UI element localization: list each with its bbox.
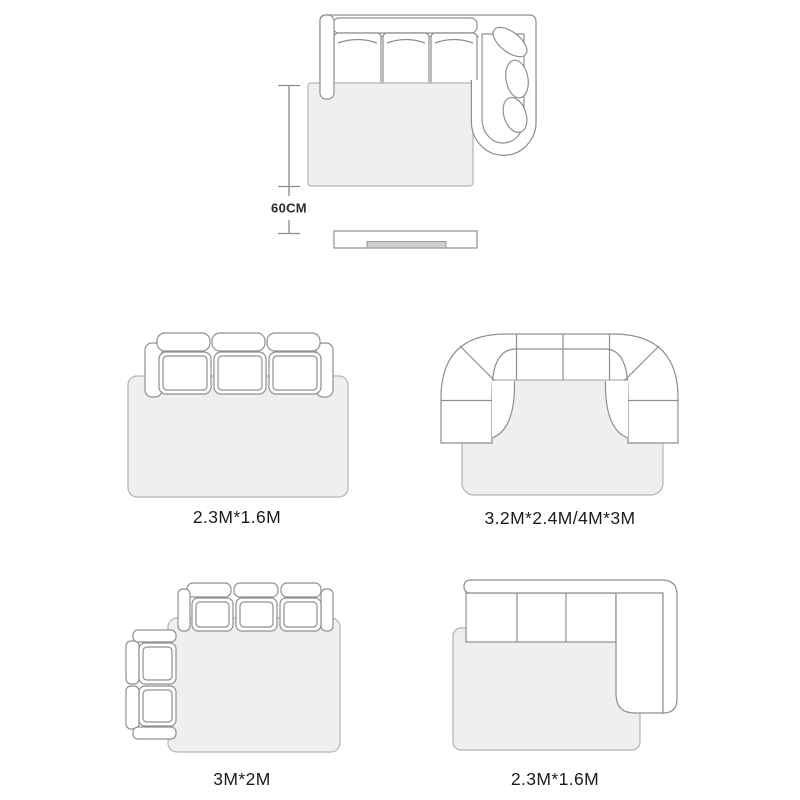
backrest-cushion xyxy=(333,18,477,33)
curved-sectional-sofa-with-rug xyxy=(441,334,678,495)
seat-section xyxy=(466,593,616,642)
size-label-sofa-with-loveseat: 3M*2M xyxy=(213,769,270,790)
loveseat-armrest xyxy=(133,630,176,642)
rug xyxy=(453,628,640,750)
back-cushion xyxy=(212,333,265,351)
chaise-section xyxy=(616,592,663,713)
back-cushion xyxy=(281,583,321,597)
armrest xyxy=(320,15,334,99)
loveseat-armrest xyxy=(133,727,176,739)
back-cushion xyxy=(157,333,210,351)
loveseat-back-cushion xyxy=(126,686,139,729)
back-cushion xyxy=(187,583,231,597)
loveseat-seat-cushion xyxy=(139,686,176,726)
size-label-curved-sectional: 3.2M*2.4M/4M*3M xyxy=(485,508,636,529)
loveseat-seat-cushion xyxy=(139,643,176,684)
seat-cushion xyxy=(383,33,429,88)
three-seat-sofa-with-side-loveseat-and-rug xyxy=(126,583,340,752)
size-guide-illustration xyxy=(0,0,800,800)
rug-under-corner-sofa xyxy=(308,83,473,186)
seat-cushion xyxy=(431,33,477,88)
armrest xyxy=(178,589,190,631)
l-shaped-sectional-sofa-with-rug xyxy=(453,580,677,750)
seat-cushion xyxy=(214,352,266,394)
seat-cushion xyxy=(334,33,381,88)
tv xyxy=(367,242,446,249)
size-label-three-seat-sofa: 2.3M*1.6M xyxy=(193,507,281,528)
dimension-label: 60CM xyxy=(269,201,309,216)
back-cushion xyxy=(267,333,320,351)
three-seat-sofa-with-rug xyxy=(128,333,348,497)
armrest xyxy=(321,589,333,631)
back-cushion xyxy=(234,583,278,597)
seat-cushion xyxy=(269,352,321,394)
loveseat-back-cushion xyxy=(126,641,139,684)
tv-stand xyxy=(334,231,477,248)
size-label-l-shaped-sectional: 2.3M*1.6M xyxy=(511,769,599,790)
rug-size-guide: 60CM 2.3M*1.6M 3.2M*2.4M/4M*3M 3M*2M 2.3… xyxy=(0,0,800,800)
seat-cushion xyxy=(159,352,211,394)
rug xyxy=(168,618,340,752)
